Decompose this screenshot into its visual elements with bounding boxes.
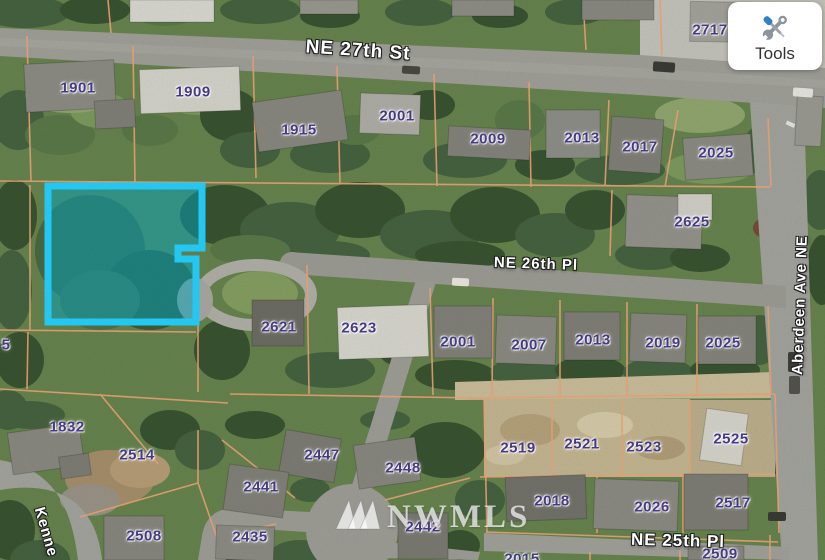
map-grain	[0, 0, 825, 560]
tools-button-label: Tools	[755, 45, 795, 62]
screwdriver-wrench-icon	[758, 10, 792, 44]
tools-button[interactable]: Tools	[728, 2, 822, 70]
aerial-map-view[interactable]: 2717190119091915200120092013201720252625…	[0, 0, 825, 560]
map-imagery	[0, 0, 825, 560]
